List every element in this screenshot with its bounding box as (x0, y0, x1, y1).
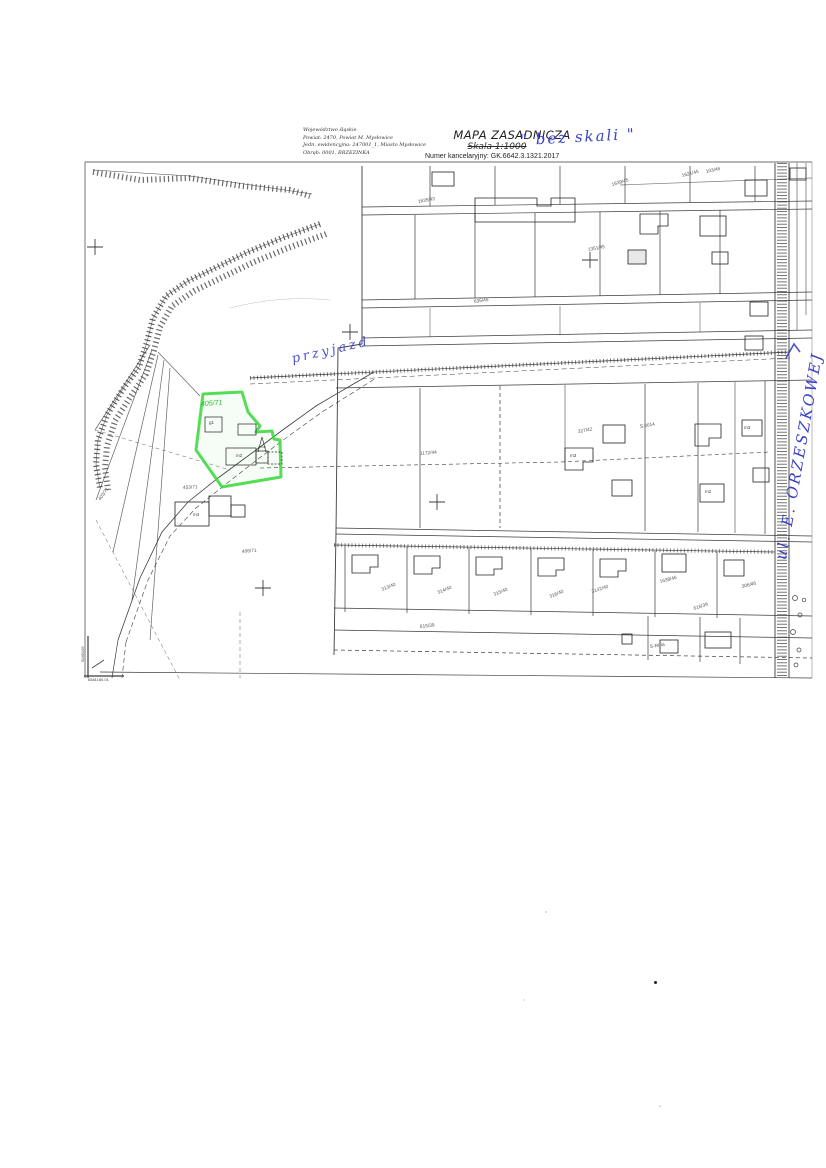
scan-speck (523, 999, 525, 1001)
building-label: m3 (744, 425, 750, 430)
building-label: g1 (209, 420, 214, 425)
buildings (175, 168, 806, 653)
building-label: m2 (705, 489, 711, 494)
upper-parcel-strips (362, 166, 812, 346)
block-boundaries (334, 166, 362, 655)
pen-flourish (786, 344, 800, 358)
middle-parcel-strips (260, 380, 812, 542)
corner-coordinate-horizontal: 6581160.01 (88, 677, 109, 682)
building-label: m3 (570, 453, 576, 458)
scan-speck (654, 981, 657, 984)
grid-crosses (87, 239, 598, 596)
lower-parcel-strips (240, 545, 812, 678)
map-frame (84, 162, 812, 678)
corner-coordinate-vertical: 5046105 (80, 646, 85, 662)
map-canvas (0, 0, 826, 1168)
parcel-label: 453/71 (183, 485, 198, 491)
building-label: m2 (236, 453, 242, 458)
scan-speck (659, 1105, 661, 1107)
scan-speck (545, 911, 547, 913)
scanned-map-page: { "header": { "left_block": { "line1": "… (0, 0, 826, 1168)
green-parcel-number: 405/71 (201, 400, 223, 408)
building-label: m3 (193, 512, 199, 517)
